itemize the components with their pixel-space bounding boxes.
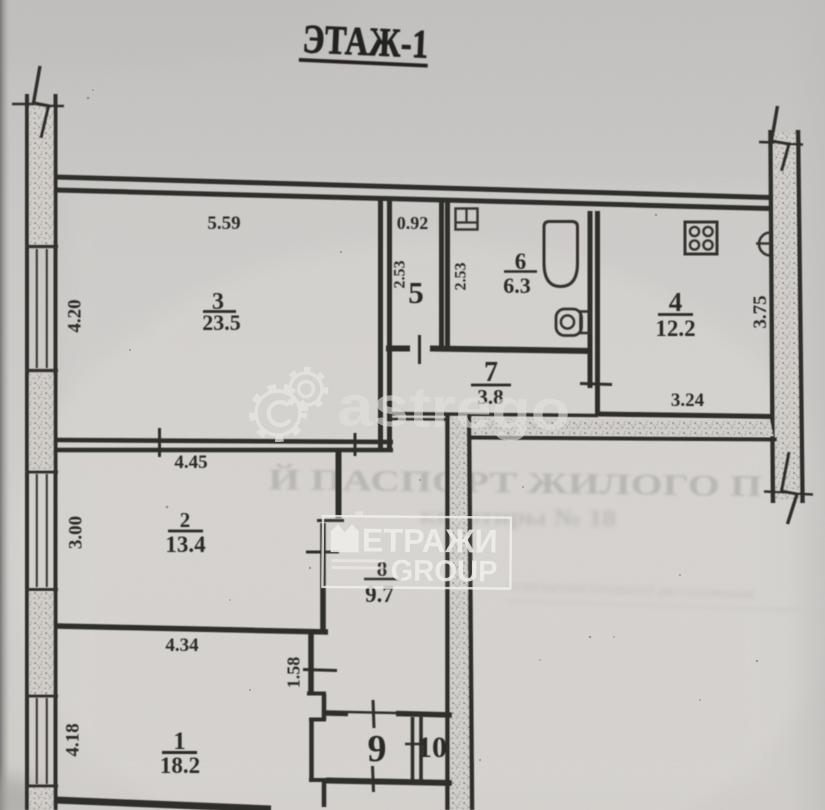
svg-text:astrego: astrego [337, 374, 571, 443]
svg-text:4.20: 4.20 [65, 299, 86, 332]
svg-text:5.59: 5.59 [207, 213, 240, 234]
svg-text:9: 9 [368, 728, 387, 770]
svg-text:5: 5 [408, 275, 424, 310]
svg-text:0.92: 0.92 [397, 213, 429, 233]
svg-text:Й ПАСПОРТ ЖИЛОГО П: Й ПАСПОРТ ЖИЛОГО П [268, 463, 762, 503]
svg-text:4: 4 [669, 287, 683, 317]
svg-text:4.34: 4.34 [165, 635, 199, 656]
svg-text:ЕТРАЖИ: ЕТРАЖИ [362, 521, 498, 559]
svg-text:3.75: 3.75 [750, 295, 771, 328]
svg-text:GROUP: GROUP [390, 555, 497, 589]
svg-text:23.5: 23.5 [202, 310, 241, 335]
svg-text:4.18: 4.18 [63, 723, 84, 756]
svg-text:1: 1 [173, 728, 186, 755]
svg-text:1.58: 1.58 [284, 657, 304, 689]
svg-text:10: 10 [417, 731, 447, 764]
svg-text:6.3: 6.3 [503, 273, 531, 298]
svg-text:4.45: 4.45 [174, 452, 207, 473]
svg-text:18.2: 18.2 [160, 753, 200, 778]
svg-text:2.53: 2.53 [392, 261, 409, 289]
svg-text:2.53: 2.53 [453, 263, 470, 291]
svg-text:3.24: 3.24 [671, 390, 705, 411]
svg-text:2: 2 [180, 508, 191, 532]
svg-text:12.2: 12.2 [655, 316, 695, 341]
svg-text:3.00: 3.00 [66, 516, 87, 549]
svg-text:13.4: 13.4 [165, 532, 206, 557]
